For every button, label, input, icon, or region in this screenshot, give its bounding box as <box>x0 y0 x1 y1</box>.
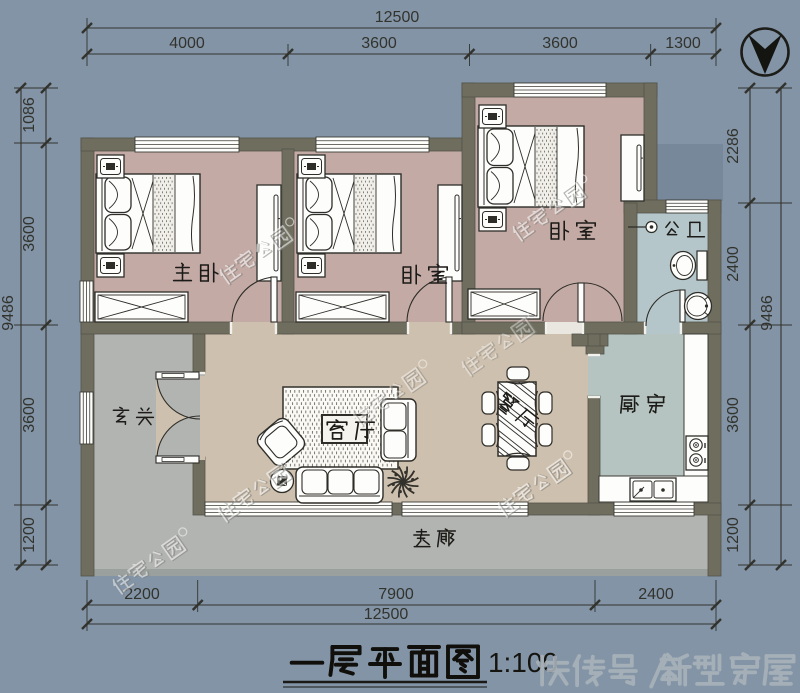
svg-text:7900: 7900 <box>378 586 414 603</box>
svg-text:1200: 1200 <box>725 517 742 553</box>
svg-text:9486: 9486 <box>0 295 17 331</box>
svg-text:3600: 3600 <box>542 35 578 52</box>
svg-text:9486: 9486 <box>759 295 776 331</box>
svg-text:2400: 2400 <box>638 586 674 603</box>
svg-text:2286: 2286 <box>725 128 742 164</box>
svg-text:2400: 2400 <box>725 246 742 282</box>
svg-text:1086: 1086 <box>21 97 38 133</box>
svg-text:3600: 3600 <box>361 35 397 52</box>
svg-text:4000: 4000 <box>169 35 205 52</box>
svg-text:3600: 3600 <box>21 216 38 252</box>
svg-text:12500: 12500 <box>375 9 420 26</box>
svg-text:3600: 3600 <box>21 397 38 433</box>
svg-text:1200: 1200 <box>21 517 38 553</box>
svg-text:3600: 3600 <box>725 397 742 433</box>
svg-text:12500: 12500 <box>364 606 409 623</box>
svg-text:1300: 1300 <box>665 35 701 52</box>
